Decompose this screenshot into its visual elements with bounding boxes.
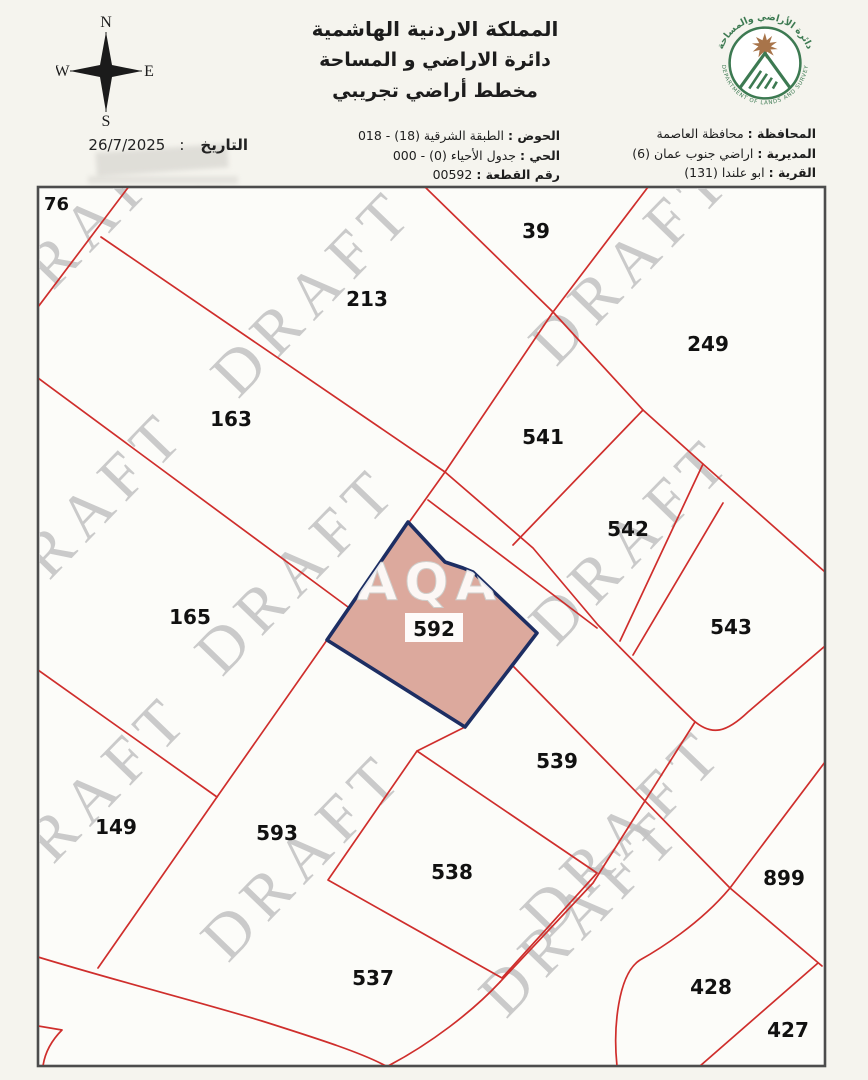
parcel-label: 76 <box>44 194 69 215</box>
parcel-label: 537 <box>352 966 394 990</box>
parcel-label: 427 <box>767 1018 809 1042</box>
parcel-label: 542 <box>607 517 649 541</box>
parcel-label: 163 <box>210 407 252 431</box>
parcel-label: 543 <box>710 615 752 639</box>
parcel-label: 249 <box>687 332 729 356</box>
parcel-label: 541 <box>522 425 564 449</box>
parcel-label: 428 <box>690 975 732 999</box>
parcel-label: 593 <box>256 821 298 845</box>
cadastral-map: DRAFT DRAFT DRAFT DRAFT DRAFT DRAFT DRAF… <box>0 0 868 1080</box>
parcel-label-highlighted: 592 <box>413 617 455 641</box>
parcel-label: 149 <box>95 815 137 839</box>
cadastral-plan-page: N W E S المملكة الاردنية الهاشمية دائرة … <box>0 0 868 1080</box>
parcel-label: 899 <box>763 866 805 890</box>
parcel-label: 213 <box>346 287 388 311</box>
parcel-label: 539 <box>536 749 578 773</box>
parcel-label: 538 <box>431 860 473 884</box>
parcel-label: 165 <box>169 605 211 629</box>
parcel-label: 39 <box>522 219 550 243</box>
